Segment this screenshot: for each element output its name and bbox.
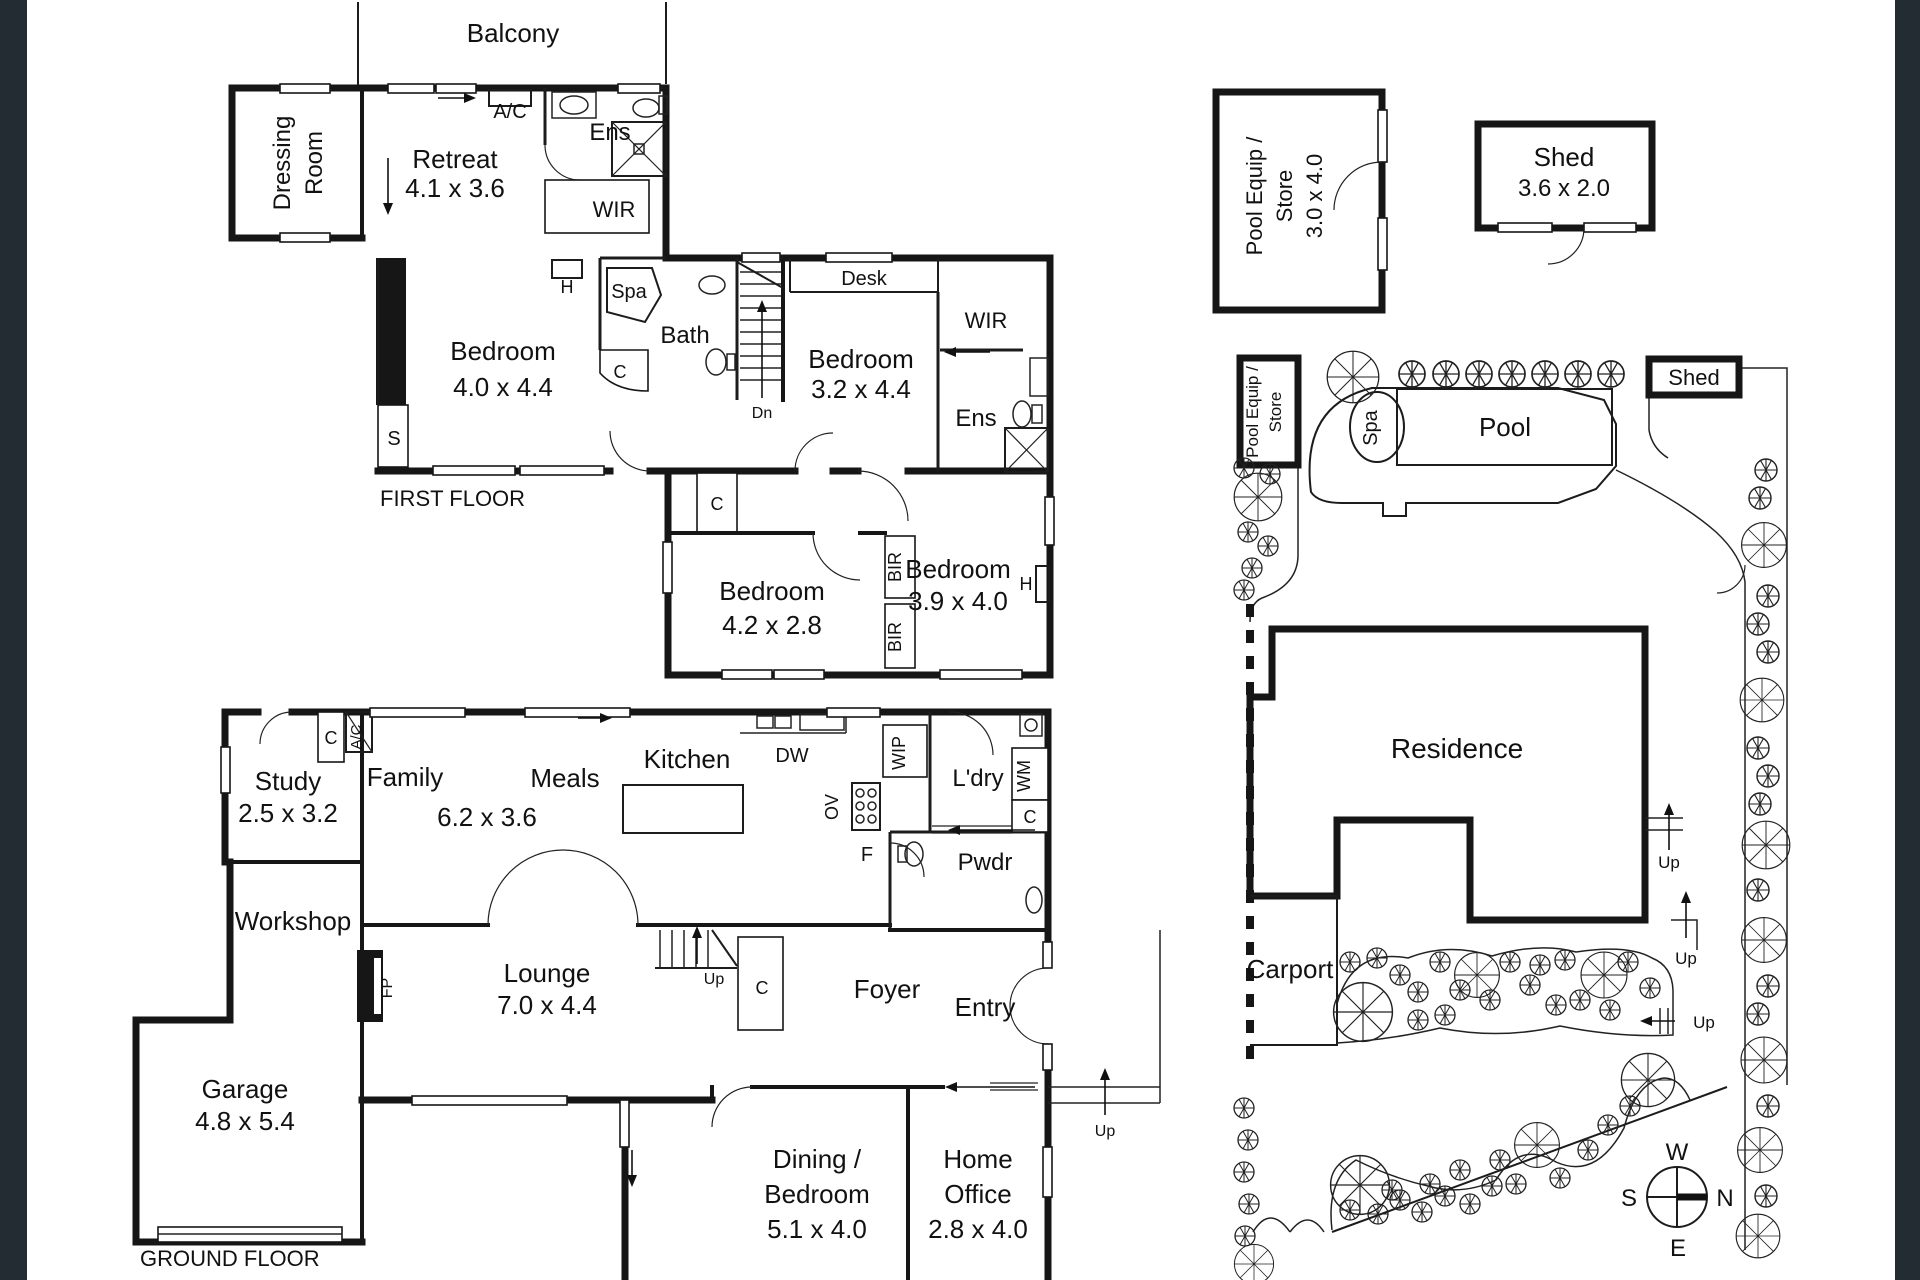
family-dims: 6.2 x 3.6 — [437, 802, 537, 832]
wir-label: WIR — [593, 197, 636, 222]
bedroom1-label: Bedroom — [450, 336, 556, 366]
bedroom1-dims: 4.0 x 4.4 — [453, 372, 553, 402]
study-dims: 2.5 x 3.2 — [238, 798, 338, 828]
closet-label-ff1: C — [614, 362, 627, 382]
heater2-label: H — [1020, 574, 1033, 594]
shed-dims: 3.6 x 2.0 — [1518, 175, 1610, 202]
porch-up-label: Up — [1095, 1123, 1116, 1140]
oven-label: OV — [822, 794, 842, 820]
dressing-room-label-2: Room — [301, 131, 328, 195]
dining-dims: 5.1 x 4.0 — [767, 1214, 867, 1244]
site-up-label-2: Up — [1675, 949, 1697, 968]
ground-floor-plan: Study 2.5 x 3.2 C A/C Family Meals 6.2 x… — [136, 708, 1160, 1278]
pool-label: Pool — [1479, 412, 1531, 442]
site-up-label-3: Up — [1693, 1013, 1715, 1032]
first-floor-plan: Balcony Dressing Room Retreat 4.1 x 3.6 … — [232, 2, 1054, 679]
wir2-label: WIR — [965, 308, 1008, 333]
bir-label-1: BIR — [885, 552, 905, 582]
site-spa-label: Spa — [1360, 409, 1382, 445]
carport-label: Carport — [1247, 954, 1334, 984]
fridge-label: F — [861, 844, 873, 866]
closet-label-gf1: C — [325, 728, 338, 748]
bir-label-2: BIR — [885, 622, 905, 652]
pool-equip-label-1: Pool Equip / — [1242, 136, 1267, 256]
spa-bath-label: Spa — [611, 281, 647, 303]
washing-machine-label: WM — [1014, 760, 1034, 792]
dressing-room-label-1: Dressing — [269, 116, 296, 211]
staircase-first-floor — [737, 262, 783, 398]
compass-south-label: S — [1621, 1185, 1637, 1212]
entry-label: Entry — [955, 992, 1016, 1022]
ac-gf-label: A/C — [348, 724, 365, 749]
study-label: Study — [255, 766, 322, 796]
skylight-label: S — [387, 428, 400, 450]
bedroom4-label: Bedroom — [905, 554, 1011, 584]
powder-label: Pwdr — [958, 849, 1013, 876]
site-pool-equip-1: Pool Equip / — [1243, 366, 1262, 458]
lounge-dims: 7.0 x 4.4 — [497, 990, 597, 1020]
floorplan-page: Balcony Dressing Room Retreat 4.1 x 3.6 … — [0, 0, 1920, 1280]
laundry-label: L'dry — [952, 765, 1003, 792]
compass-east-label: E — [1670, 1235, 1686, 1262]
retreat-dims: 4.1 x 3.6 — [405, 173, 505, 203]
garage-label: Garage — [202, 1074, 289, 1104]
pool-equip-label-2: Store — [1272, 170, 1297, 223]
ensuite-label: Ens — [589, 119, 630, 146]
retreat-label: Retreat — [412, 144, 498, 174]
pantry-label: WIP — [889, 736, 909, 770]
residence-label: Residence — [1391, 733, 1523, 764]
bedroom2-dims: 3.2 x 4.4 — [811, 374, 911, 404]
staircase-ground-floor — [655, 926, 737, 968]
floorplan-drawing: Balcony Dressing Room Retreat 4.1 x 3.6 … — [0, 0, 1920, 1280]
ac-label: A/C — [493, 101, 526, 123]
closet-label-gf2: C — [1024, 807, 1037, 827]
family-label: Family — [367, 762, 444, 792]
pool-equip-dims: 3.0 x 4.0 — [1302, 154, 1327, 238]
shed-label: Shed — [1534, 142, 1595, 172]
office-label-1: Home — [943, 1144, 1012, 1174]
desk-label: Desk — [841, 268, 888, 290]
balcony-label: Balcony — [467, 18, 560, 48]
closet-label-ff2: C — [711, 494, 724, 514]
dining-label-2: Bedroom — [764, 1179, 870, 1209]
site-plan: Pool Equip / Store Pool Spa Shed Residen… — [1234, 351, 1790, 1280]
bedroom4-dims: 3.9 x 4.0 — [908, 586, 1008, 616]
bath-label: Bath — [660, 322, 709, 349]
ground-floor-title: GROUND FLOOR — [140, 1246, 320, 1271]
site-vegetation — [1234, 351, 1790, 1280]
site-up-label-1: Up — [1658, 853, 1680, 872]
office-label-2: Office — [944, 1179, 1011, 1209]
ensuite2-label: Ens — [955, 405, 996, 432]
office-dims: 2.8 x 4.0 — [928, 1214, 1028, 1244]
stairs-down-label: Dn — [752, 405, 772, 422]
site-shed-label: Shed — [1668, 365, 1719, 390]
foyer-label: Foyer — [854, 974, 921, 1004]
meals-label: Meals — [530, 763, 599, 793]
bedroom3-label: Bedroom — [719, 576, 825, 606]
dining-label-1: Dining / — [773, 1144, 862, 1174]
first-floor-title: FIRST FLOOR — [380, 486, 525, 511]
lounge-label: Lounge — [504, 958, 591, 988]
compass-west-label: W — [1666, 1139, 1689, 1166]
bedroom2-label: Bedroom — [808, 344, 914, 374]
outbuildings: Pool Equip / Store 3.0 x 4.0 Shed 3.6 x … — [1216, 92, 1652, 310]
workshop-label: Workshop — [235, 906, 352, 936]
compass-north-label: N — [1716, 1185, 1733, 1212]
fireplace-label: FP — [379, 978, 396, 998]
closet-label-gf3: C — [756, 978, 769, 998]
heater-label: H — [561, 277, 574, 297]
stairs-up-label-gf: Up — [704, 971, 725, 988]
bedroom3-dims: 4.2 x 2.8 — [722, 610, 822, 640]
compass-icon: W N S E — [1621, 1139, 1734, 1262]
kitchen-label: Kitchen — [644, 744, 731, 774]
dishwasher-label: DW — [775, 745, 808, 767]
garage-dims: 4.8 x 5.4 — [195, 1106, 295, 1136]
site-pool-equip-2: Store — [1266, 392, 1285, 433]
